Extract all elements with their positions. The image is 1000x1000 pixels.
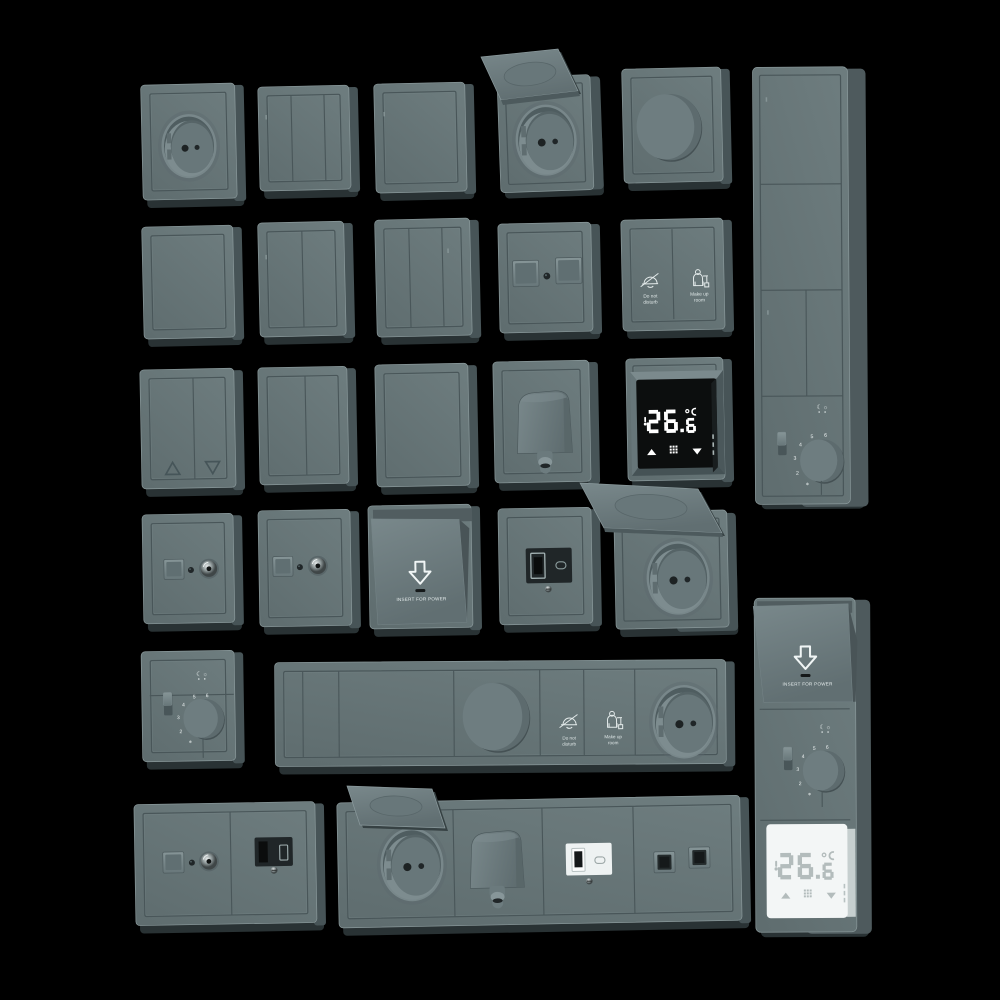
svg-text:❄: ❄ [189,740,192,744]
svg-text:☾: ☾ [196,670,202,678]
svg-text:☾: ☾ [820,723,826,731]
svg-text:6: 6 [826,745,829,751]
svg-text:6: 6 [206,693,209,699]
svg-text:disturb: disturb [643,299,658,305]
svg-text:Make up: Make up [690,291,709,297]
svg-text:2: 2 [796,471,799,477]
svg-text:2: 2 [799,781,802,787]
svg-text:disturb: disturb [562,742,576,747]
svg-text:Do not: Do not [562,736,576,741]
svg-text:room: room [608,740,619,745]
svg-text:Make up: Make up [604,734,622,739]
svg-text:❄: ❄ [808,793,811,797]
svg-text:5: 5 [813,746,816,752]
svg-text:❄: ❄ [806,481,809,486]
svg-text:5: 5 [810,434,813,440]
svg-text:☾: ☾ [817,403,823,411]
svg-text:Do not: Do not [643,293,658,299]
svg-text:☼: ☼ [826,725,831,731]
svg-text:4: 4 [182,702,185,708]
svg-text:4: 4 [802,754,805,760]
svg-text:5: 5 [193,694,196,700]
svg-text:INSERT FOR POWER: INSERT FOR POWER [782,681,833,686]
svg-text:3: 3 [796,767,799,773]
svg-text:3: 3 [177,715,180,721]
svg-text:room: room [694,298,705,303]
svg-text:INSERT FOR POWER: INSERT FOR POWER [396,596,447,602]
svg-text:3: 3 [793,456,796,462]
svg-text:6: 6 [824,433,827,439]
svg-text:☼: ☼ [823,405,828,411]
svg-text:4: 4 [799,442,802,448]
svg-text:2: 2 [179,729,182,735]
svg-text:☼: ☼ [203,672,208,678]
